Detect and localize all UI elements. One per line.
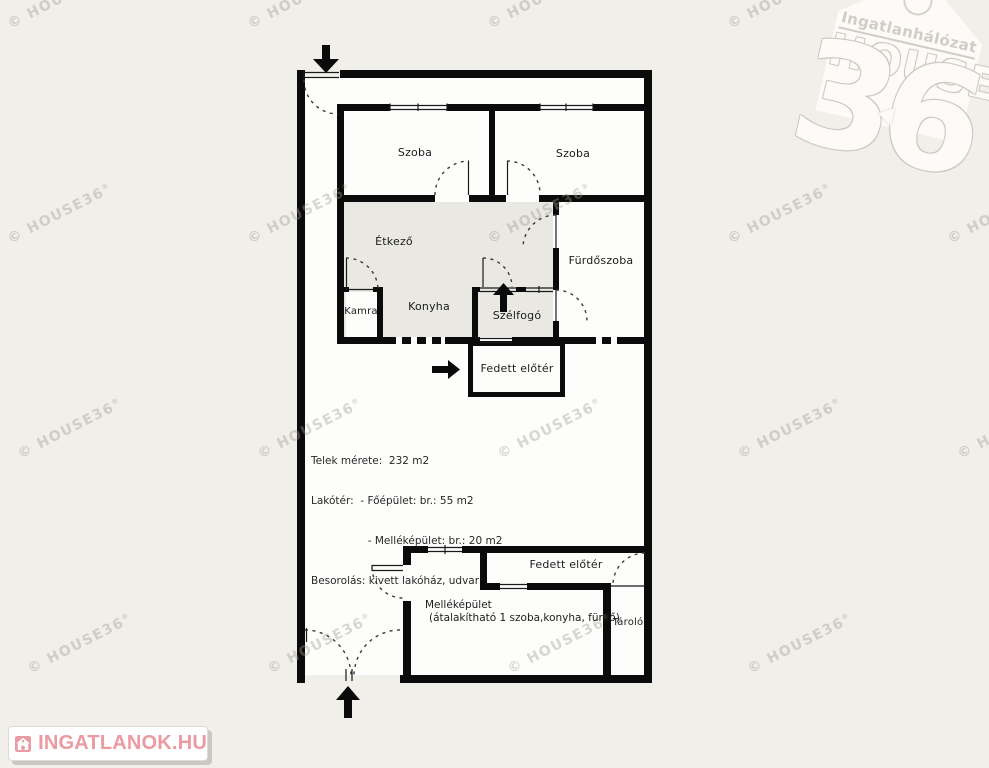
room-label-fedett-eloter-upper: Fedett előtér <box>480 362 553 375</box>
logo-number: 36 <box>760 13 989 204</box>
room-label-fedett-eloter-lower: Fedett előtér <box>529 558 602 571</box>
property-info-block: Telek mérete: 232 m2 Lakótér: - Főépület… <box>311 428 502 616</box>
room-label-kamra: Kamra <box>344 306 378 317</box>
house-icon <box>15 731 31 757</box>
room-label-furdoszoba: Fürdőszoba <box>569 254 634 267</box>
room-label-szoba-left: Szoba <box>398 146 432 159</box>
badge-label: INGATLANOK.HU <box>38 732 207 755</box>
room-label-szoba-right: Szoba <box>556 147 590 160</box>
ingatlanok-badge: INGATLANOK.HU <box>8 726 208 761</box>
info-line-outbuilding: - Melléképület: br.: 20 m2 <box>311 535 502 548</box>
room-label-etkezo: Étkező <box>375 235 413 248</box>
room-label-szelfogo: Szélfogó <box>493 309 542 322</box>
floorplan-page: © HOUSE36®© HOUSE36®© HOUSE36®© HOUSE36®… <box>0 0 989 768</box>
room-label-konyha: Konyha <box>408 300 450 313</box>
info-line-category: Besorolás: kivett lakóház, udvar <box>311 575 502 588</box>
info-line-plot-size: Telek mérete: 232 m2 <box>311 455 502 468</box>
info-line-main-bldg: Lakótér: - Főépület: br.: 55 m2 <box>311 495 502 508</box>
